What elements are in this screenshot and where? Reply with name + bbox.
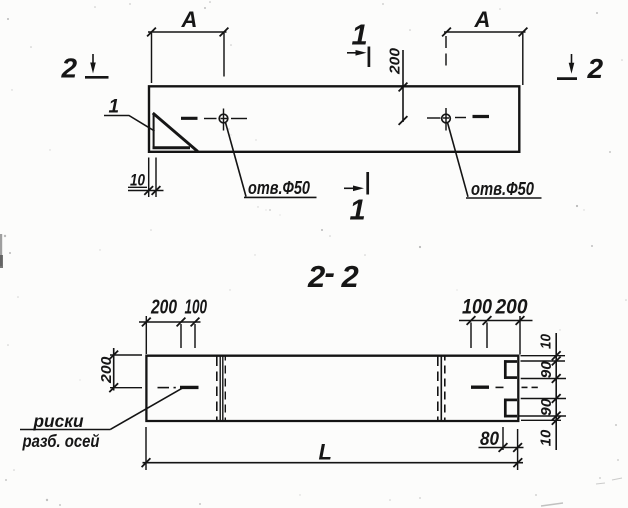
svg-text:2: 2 (61, 53, 78, 84)
svg-text:100: 100 (462, 296, 492, 319)
svg-text:200: 200 (99, 357, 115, 385)
svg-text:90: 90 (539, 361, 555, 378)
svg-text:10: 10 (130, 172, 146, 190)
svg-text:10: 10 (539, 430, 555, 447)
svg-text:отв.Ф50: отв.Ф50 (248, 178, 310, 198)
svg-text:1: 1 (350, 195, 366, 227)
svg-text:2-2: 2-2 (307, 255, 359, 294)
svg-text:100: 100 (185, 297, 208, 319)
svg-text:1: 1 (109, 97, 120, 118)
svg-text:200: 200 (495, 296, 528, 319)
svg-text:10: 10 (539, 334, 555, 349)
svg-text:отв.Ф50: отв.Ф50 (471, 179, 534, 199)
svg-text:200: 200 (150, 297, 177, 319)
svg-text:А: А (474, 7, 491, 32)
svg-text:80: 80 (480, 429, 499, 450)
svg-text:90: 90 (539, 399, 555, 417)
svg-text:2: 2 (587, 53, 604, 84)
svg-text:разб. осей: разб. осей (22, 431, 100, 451)
svg-text:200: 200 (387, 48, 403, 75)
svg-text:L: L (319, 440, 332, 465)
svg-text:1: 1 (352, 20, 368, 52)
svg-text:А: А (181, 7, 198, 32)
svg-text:риски: риски (33, 411, 84, 431)
